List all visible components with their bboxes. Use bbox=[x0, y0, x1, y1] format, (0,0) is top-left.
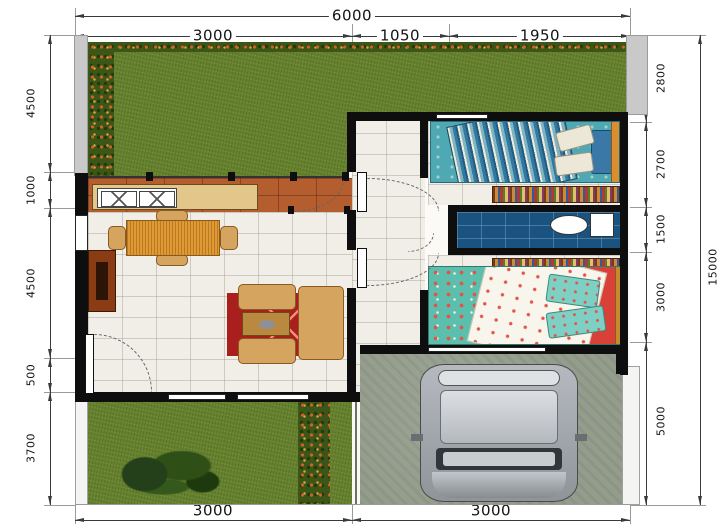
fence-right bbox=[626, 35, 648, 115]
wall bbox=[347, 210, 356, 250]
wall bbox=[347, 121, 356, 172]
dim-label-top-total: 6000 bbox=[329, 9, 375, 24]
bed-1-bolster bbox=[591, 130, 613, 174]
dining-table bbox=[126, 220, 220, 256]
window bbox=[428, 347, 546, 352]
dim-label-left-seg3: 4500 bbox=[26, 268, 37, 298]
sofa-single-top bbox=[238, 284, 296, 310]
dim-label-right-total: 15000 bbox=[708, 248, 719, 286]
flower-border-left bbox=[88, 52, 114, 176]
extension-line bbox=[628, 342, 652, 343]
wall bbox=[448, 248, 628, 255]
dim-line-bottom-seg2 bbox=[352, 520, 630, 521]
dim-line-left-seg2 bbox=[50, 172, 51, 208]
gutter-left bbox=[75, 400, 88, 505]
dim-label-bottom-seg1: 3000 bbox=[190, 504, 236, 519]
wall-post bbox=[228, 172, 235, 181]
extension-line bbox=[628, 207, 652, 208]
bed-1-headboard bbox=[611, 122, 620, 183]
dim-label-bottom-seg2: 3000 bbox=[468, 504, 514, 519]
extension-line bbox=[628, 122, 652, 123]
tv-cabinet bbox=[88, 250, 116, 312]
plan-bottom-edge bbox=[75, 504, 630, 505]
yard-top-right bbox=[347, 42, 628, 112]
bed-2 bbox=[428, 266, 622, 345]
fence-left bbox=[74, 35, 88, 176]
wall bbox=[347, 288, 356, 400]
dim-label-right-seg5: 5000 bbox=[656, 406, 667, 436]
extension-line bbox=[628, 252, 652, 253]
door-jamb bbox=[344, 206, 350, 214]
window bbox=[237, 394, 309, 400]
dim-line-right-seg4 bbox=[646, 252, 647, 342]
dim-label-right-seg4: 3000 bbox=[656, 282, 667, 312]
kitchen-counter bbox=[92, 184, 258, 210]
wall-post bbox=[146, 172, 153, 181]
dim-line-right-total bbox=[700, 35, 701, 505]
window bbox=[168, 394, 226, 400]
wall bbox=[448, 205, 628, 212]
extension-line bbox=[44, 505, 75, 506]
window bbox=[75, 215, 88, 251]
yard-top-left bbox=[88, 42, 347, 176]
dim-label-right-seg1: 2800 bbox=[656, 63, 667, 93]
dim-line-bottom-seg1 bbox=[75, 520, 352, 521]
bookshelf-1 bbox=[492, 186, 620, 203]
bed-1 bbox=[430, 121, 620, 183]
dim-label-right-seg2: 2700 bbox=[656, 149, 667, 179]
car-windshield bbox=[436, 448, 562, 470]
shrub bbox=[105, 438, 237, 504]
dim-label-left-seg2: 1000 bbox=[26, 175, 37, 205]
flower-border-top bbox=[88, 42, 628, 52]
window bbox=[436, 114, 488, 119]
extension-line bbox=[630, 505, 706, 506]
dim-label-right-seg3: 1500 bbox=[656, 214, 667, 244]
car-roof bbox=[440, 390, 558, 444]
extension-line bbox=[630, 505, 631, 524]
car-mirror-left bbox=[411, 434, 423, 441]
car-mirror-right bbox=[575, 434, 587, 441]
floor-plan: 6000 3000 1050 1950 4500 1000 4500 500 3… bbox=[0, 0, 724, 526]
yard-carport-edge bbox=[355, 400, 357, 505]
dim-label-left-seg4: 500 bbox=[26, 364, 37, 387]
dim-line-right-seg5 bbox=[646, 342, 647, 505]
dim-line-left-seg4 bbox=[50, 358, 51, 392]
sink-basin bbox=[101, 191, 137, 207]
toilet-bowl bbox=[550, 215, 588, 235]
bedroom1-door-leaf bbox=[357, 172, 367, 212]
dim-label-left-seg1: 4500 bbox=[26, 88, 37, 118]
dim-label-left-seg5: 3700 bbox=[26, 433, 37, 463]
sink-basin bbox=[139, 191, 175, 207]
wall bbox=[420, 121, 428, 178]
bed-1-pillow bbox=[554, 151, 594, 176]
car-rear-window bbox=[438, 370, 560, 386]
dim-line-left-seg3 bbox=[50, 208, 51, 358]
wall bbox=[620, 112, 628, 375]
wall bbox=[616, 352, 628, 374]
gutter-right bbox=[622, 366, 640, 505]
car bbox=[420, 364, 578, 502]
car-hood bbox=[432, 472, 566, 498]
front-door-leaf bbox=[85, 334, 94, 394]
dim-line-left-seg1 bbox=[50, 35, 51, 172]
toilet-tank bbox=[590, 213, 614, 237]
flower-border-bottom bbox=[298, 400, 330, 505]
dining-chair bbox=[108, 226, 126, 250]
kitchen-yard-edge bbox=[88, 176, 347, 178]
coffee-table bbox=[242, 312, 290, 336]
door-jamb bbox=[288, 206, 294, 214]
kitchen-sink bbox=[97, 188, 177, 208]
table-item bbox=[259, 320, 275, 329]
dim-line-right-seg2 bbox=[646, 122, 647, 207]
dim-line-right-seg3 bbox=[646, 207, 647, 252]
wall bbox=[420, 290, 428, 352]
sofa-main bbox=[298, 286, 344, 360]
tv-screen bbox=[96, 262, 108, 300]
dining-chair bbox=[220, 226, 238, 250]
sofa-single-bottom bbox=[238, 338, 296, 364]
bedroom2-door-leaf bbox=[357, 248, 367, 288]
car-windshield-glass bbox=[443, 452, 555, 466]
dim-line-left-seg5 bbox=[50, 392, 51, 505]
